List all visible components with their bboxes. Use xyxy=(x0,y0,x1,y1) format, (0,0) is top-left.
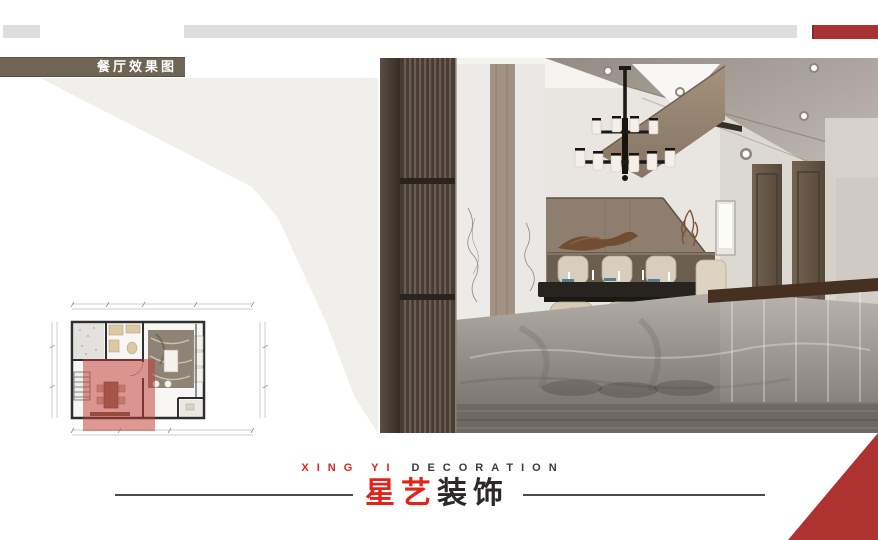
art-walls xyxy=(455,64,545,326)
slatted-cabinet xyxy=(380,58,457,433)
presentation-slide: 餐厅效果图 xyxy=(0,0,878,540)
floor-plan xyxy=(48,298,273,443)
corridor-window xyxy=(716,201,735,255)
dining-area-highlight xyxy=(83,359,155,431)
tagline-decoration: DECORATION xyxy=(412,462,565,474)
tagline: XING YIDECORATION xyxy=(301,462,564,474)
glass-railing xyxy=(708,278,878,402)
tagline-xingyi: XING YI xyxy=(301,462,397,474)
brand-rule-left xyxy=(115,494,353,496)
brand-name: 星艺装饰 xyxy=(365,477,509,511)
dining-room-photo xyxy=(380,58,878,433)
brand-name-red: 星艺 xyxy=(365,477,437,510)
wood-plank-strip xyxy=(455,404,878,433)
brand-name-dark: 装饰 xyxy=(437,477,509,510)
brand-rule-right xyxy=(523,494,765,496)
